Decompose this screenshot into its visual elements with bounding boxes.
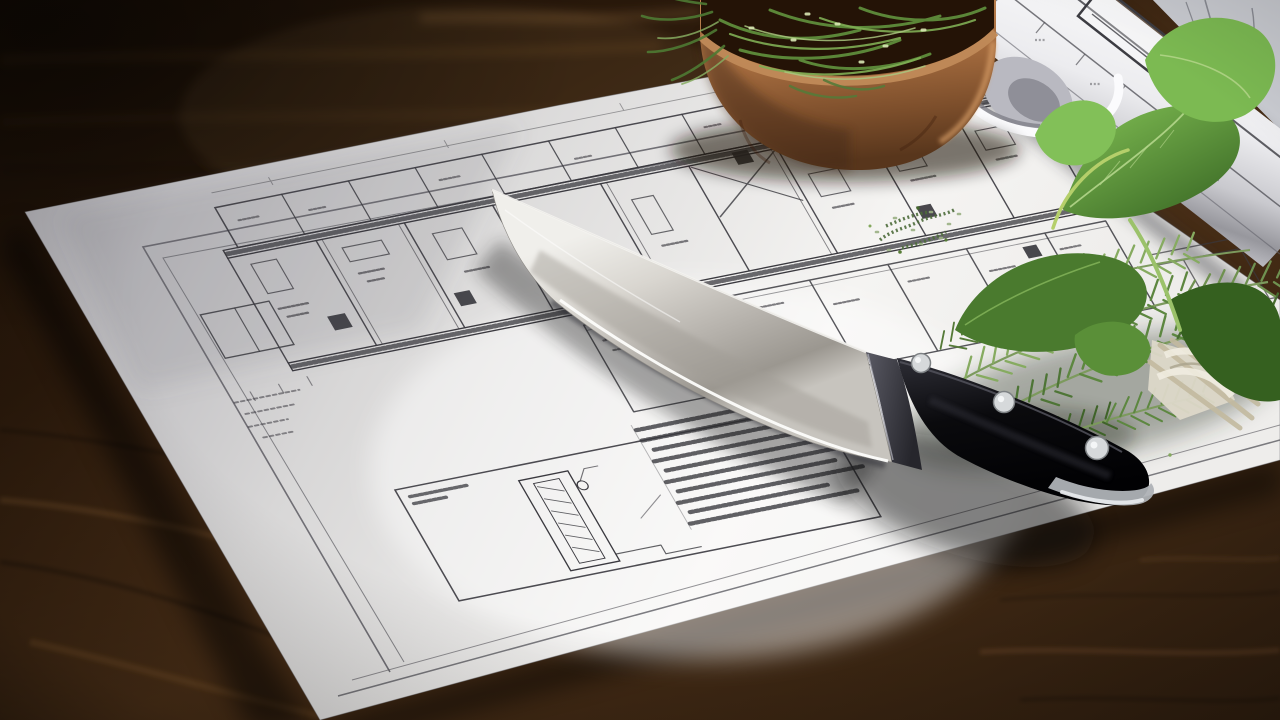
photo-scene: Chef's knife resting on architectural fl… bbox=[0, 0, 1280, 720]
vignette-overlay bbox=[0, 0, 1280, 720]
photo-canvas: Chef's knife resting on architectural fl… bbox=[0, 0, 1280, 720]
